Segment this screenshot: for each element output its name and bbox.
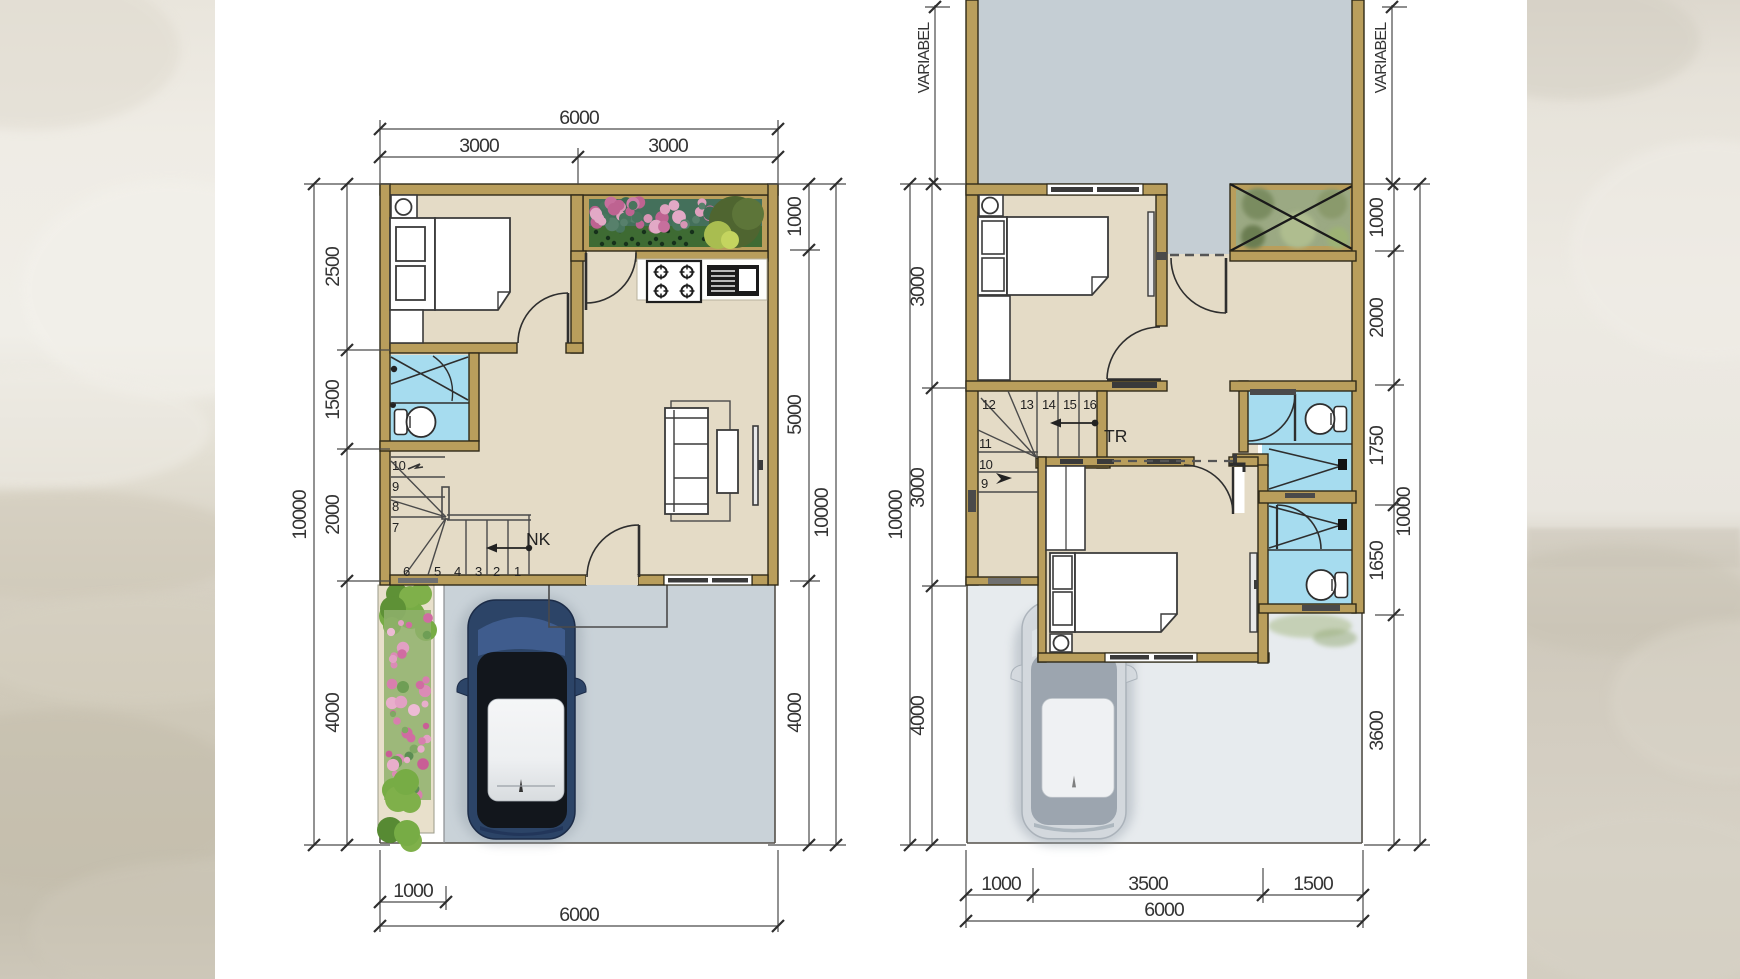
svg-text:10000: 10000	[289, 489, 311, 539]
svg-text:1000: 1000	[784, 196, 806, 237]
svg-text:3: 3	[475, 564, 482, 579]
svg-text:10: 10	[979, 457, 993, 472]
svg-text:1650: 1650	[1366, 540, 1388, 581]
svg-text:4000: 4000	[907, 695, 929, 736]
svg-text:7: 7	[392, 520, 399, 535]
svg-text:3000: 3000	[907, 266, 929, 307]
svg-text:TR: TR	[1104, 426, 1127, 446]
svg-text:4000: 4000	[784, 692, 806, 733]
svg-text:8: 8	[392, 499, 399, 514]
svg-text:4: 4	[454, 564, 461, 579]
svg-text:3000: 3000	[648, 135, 689, 157]
svg-text:1000: 1000	[1366, 197, 1388, 238]
svg-text:1500: 1500	[322, 379, 344, 420]
svg-text:13: 13	[1020, 397, 1034, 412]
svg-text:10: 10	[392, 458, 406, 473]
svg-text:1000: 1000	[981, 873, 1022, 895]
svg-text:9: 9	[392, 479, 399, 494]
svg-text:4000: 4000	[322, 692, 344, 733]
svg-text:3000: 3000	[459, 135, 500, 157]
svg-text:2: 2	[493, 564, 500, 579]
svg-text:1750: 1750	[1366, 425, 1388, 466]
svg-text:2000: 2000	[1366, 297, 1388, 338]
svg-text:6: 6	[403, 564, 410, 579]
svg-text:12: 12	[982, 397, 996, 412]
svg-text:1: 1	[514, 564, 521, 579]
svg-text:6000: 6000	[559, 107, 600, 129]
svg-text:16: 16	[1083, 397, 1097, 412]
svg-text:3600: 3600	[1366, 710, 1388, 751]
svg-text:11: 11	[979, 436, 992, 451]
svg-text:NK: NK	[526, 529, 551, 549]
svg-text:3000: 3000	[907, 467, 929, 508]
svg-text:3500: 3500	[1128, 873, 1169, 895]
svg-text:1500: 1500	[1293, 873, 1334, 895]
svg-text:6000: 6000	[559, 904, 600, 926]
svg-text:VARIABEL: VARIABEL	[916, 22, 933, 94]
svg-text:2500: 2500	[322, 246, 344, 287]
svg-text:5000: 5000	[784, 394, 806, 435]
svg-text:10000: 10000	[885, 489, 907, 539]
svg-text:15: 15	[1063, 397, 1077, 412]
svg-text:6000: 6000	[1144, 899, 1185, 921]
svg-text:10000: 10000	[811, 487, 833, 537]
svg-text:1000: 1000	[393, 880, 434, 902]
svg-text:VARIABEL: VARIABEL	[1373, 22, 1390, 94]
svg-text:14: 14	[1042, 397, 1056, 412]
svg-text:5: 5	[434, 564, 441, 579]
svg-text:2000: 2000	[322, 494, 344, 535]
svg-text:10000: 10000	[1393, 486, 1415, 536]
svg-text:9: 9	[981, 476, 988, 491]
